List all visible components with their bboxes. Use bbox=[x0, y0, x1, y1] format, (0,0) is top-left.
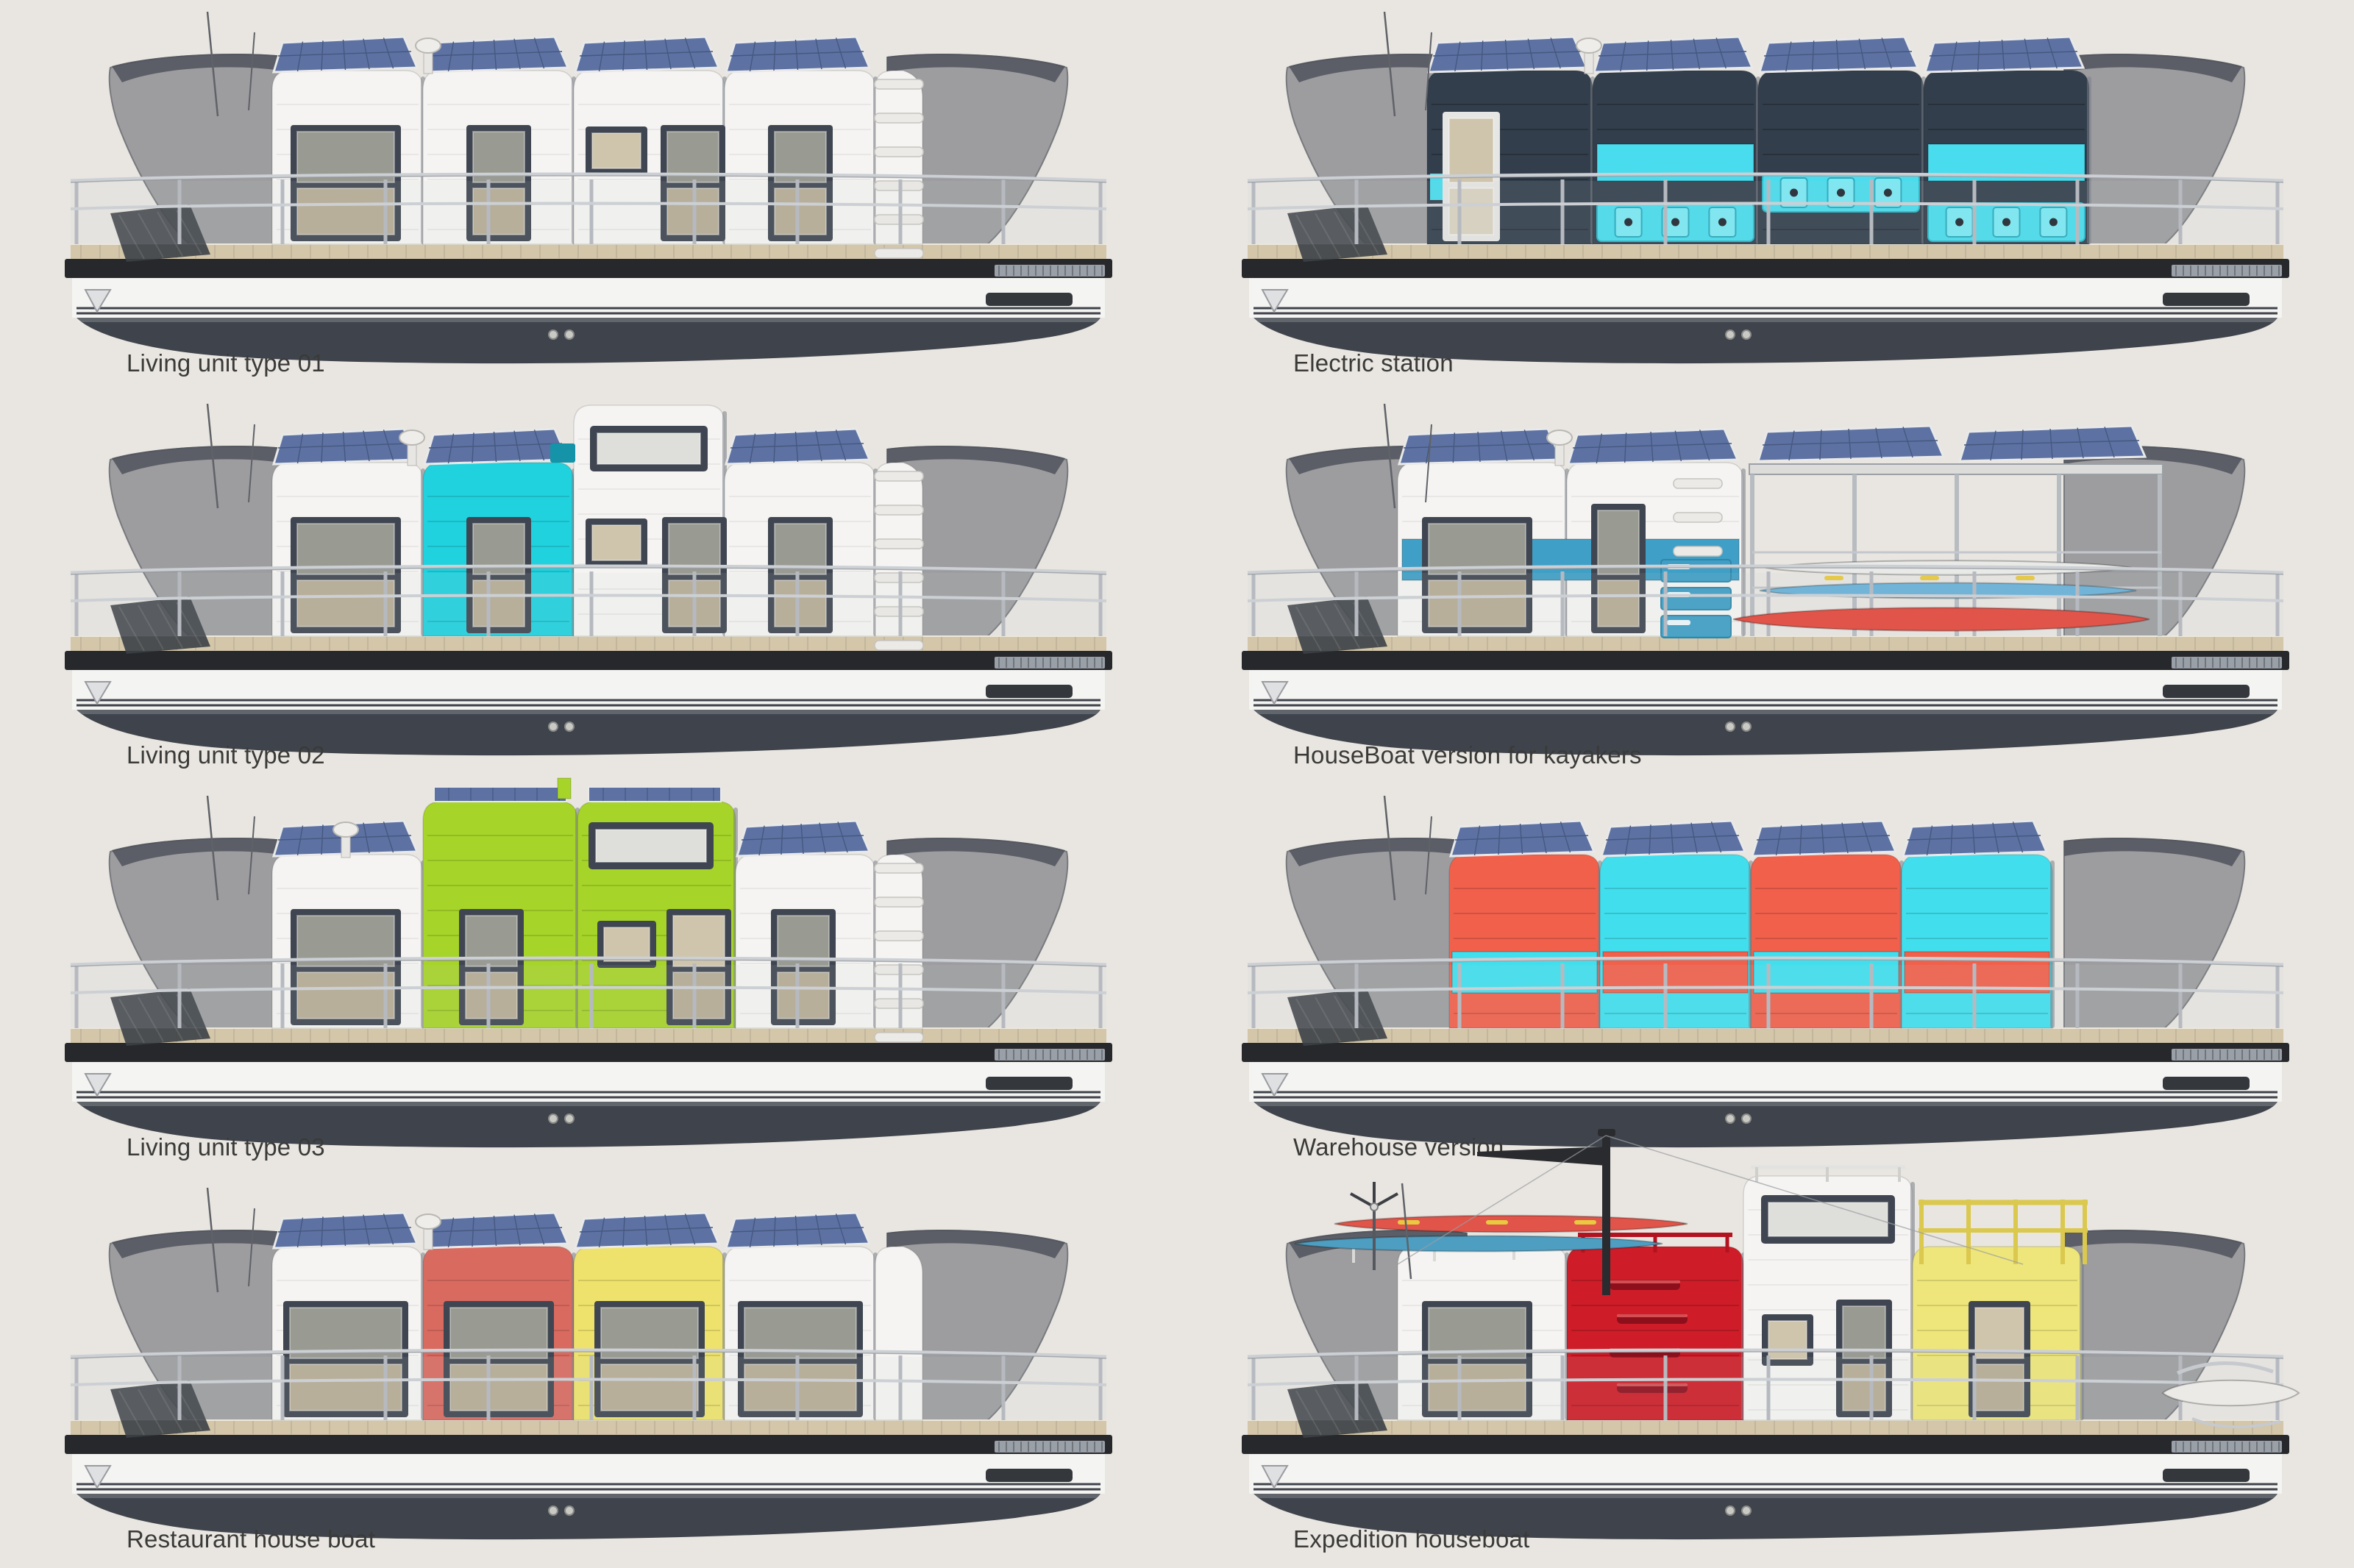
horizontal-window bbox=[588, 822, 714, 869]
front-kayak bbox=[1733, 607, 2149, 631]
solar-panel bbox=[726, 1213, 870, 1248]
deck-railing bbox=[1248, 1350, 2283, 1420]
solar-panel bbox=[1399, 429, 1561, 464]
caption-restaurant-house-boat: Restaurant house boat bbox=[127, 1526, 375, 1553]
small-window bbox=[586, 126, 647, 175]
houseboat-illustration-restaurant bbox=[0, 1176, 1177, 1568]
solar-panel bbox=[1594, 37, 1752, 72]
solar-panel bbox=[737, 821, 870, 856]
deck-railing bbox=[1248, 566, 2283, 636]
deck-railing bbox=[71, 566, 1106, 636]
solar-panel bbox=[1601, 821, 1745, 856]
solar-panel bbox=[1451, 821, 1594, 856]
houseboat-illustration-warehouse bbox=[1177, 784, 2354, 1176]
caption-electric-station: Electric station bbox=[1293, 350, 1454, 377]
solar-panel bbox=[1960, 426, 2145, 461]
solar-panel bbox=[424, 429, 568, 464]
deck-railing bbox=[71, 174, 1106, 244]
horizontal-window bbox=[590, 426, 708, 471]
deck-railing bbox=[1248, 958, 2283, 1028]
roof bbox=[1451, 821, 2047, 856]
caption-living-unit-type-02: Living unit type 02 bbox=[127, 742, 325, 769]
solar-panel bbox=[274, 429, 417, 464]
solar-panel bbox=[726, 37, 870, 72]
solar-panel bbox=[575, 37, 719, 72]
houseboat-illustration-living-unit-type-03 bbox=[0, 784, 1177, 1176]
solar-panel bbox=[274, 37, 417, 72]
solar-panel bbox=[424, 1213, 568, 1248]
houseboat-illustration-living-unit-type-02 bbox=[0, 392, 1177, 784]
figure-living-unit-type-02: Living unit type 02 bbox=[0, 392, 1177, 784]
figure-restaurant-house-boat: Restaurant house boat bbox=[0, 1176, 1177, 1568]
caption-living-unit-type-03: Living unit type 03 bbox=[127, 1134, 325, 1161]
solar-panel bbox=[1429, 37, 1587, 72]
houseboat-illustration-kayakers bbox=[1177, 392, 2354, 784]
solar-panel bbox=[274, 1213, 417, 1248]
caption-houseboat-for-kayakers: HouseBoat version for kayakers bbox=[1293, 742, 1642, 769]
figure-living-unit-type-03: Living unit type 03 bbox=[0, 784, 1177, 1176]
figure-houseboat-for-kayakers: HouseBoat version for kayakers bbox=[1177, 392, 2354, 784]
houseboat-lineup-sheet: Living unit type 01 Electric station Liv… bbox=[0, 0, 2354, 1568]
solar-panel bbox=[1568, 429, 1738, 464]
roof bbox=[274, 1213, 870, 1250]
solar-panel bbox=[1758, 426, 1944, 461]
roof bbox=[1399, 429, 1738, 466]
houseboat-illustration-electric-station bbox=[1177, 0, 2354, 392]
caption-warehouse-version: Warehouse version bbox=[1293, 1134, 1504, 1161]
figure-living-unit-type-01: Living unit type 01 bbox=[0, 0, 1177, 392]
figure-electric-station: Electric station bbox=[1177, 0, 2354, 392]
caption-living-unit-type-01: Living unit type 01 bbox=[127, 350, 325, 377]
solar-panel bbox=[1752, 821, 1896, 856]
solar-panel bbox=[1903, 821, 2047, 856]
roof bbox=[274, 429, 870, 466]
deck-railing bbox=[71, 1350, 1106, 1420]
figure-expedition-houseboat: Expedition houseboat bbox=[1177, 1176, 2354, 1568]
solar-panel bbox=[575, 1213, 719, 1248]
solar-panel bbox=[1925, 37, 2083, 72]
deck-railing bbox=[71, 958, 1106, 1028]
figure-warehouse-version: Warehouse version bbox=[1177, 784, 2354, 1176]
caption-expedition-houseboat: Expedition houseboat bbox=[1293, 1526, 1529, 1553]
small-window bbox=[586, 518, 647, 567]
roof bbox=[274, 37, 870, 74]
solar-panel bbox=[1760, 37, 1918, 72]
houseboat-illustration-expedition bbox=[1177, 1176, 2354, 1568]
houseboat-illustration-living-unit-type-01 bbox=[0, 0, 1177, 392]
small-window bbox=[597, 921, 656, 968]
horizontal-window bbox=[1761, 1195, 1895, 1244]
deck-railing bbox=[1248, 174, 2283, 244]
solar-panel bbox=[726, 429, 870, 464]
roof bbox=[1429, 37, 2083, 74]
solar-panel bbox=[424, 37, 568, 72]
